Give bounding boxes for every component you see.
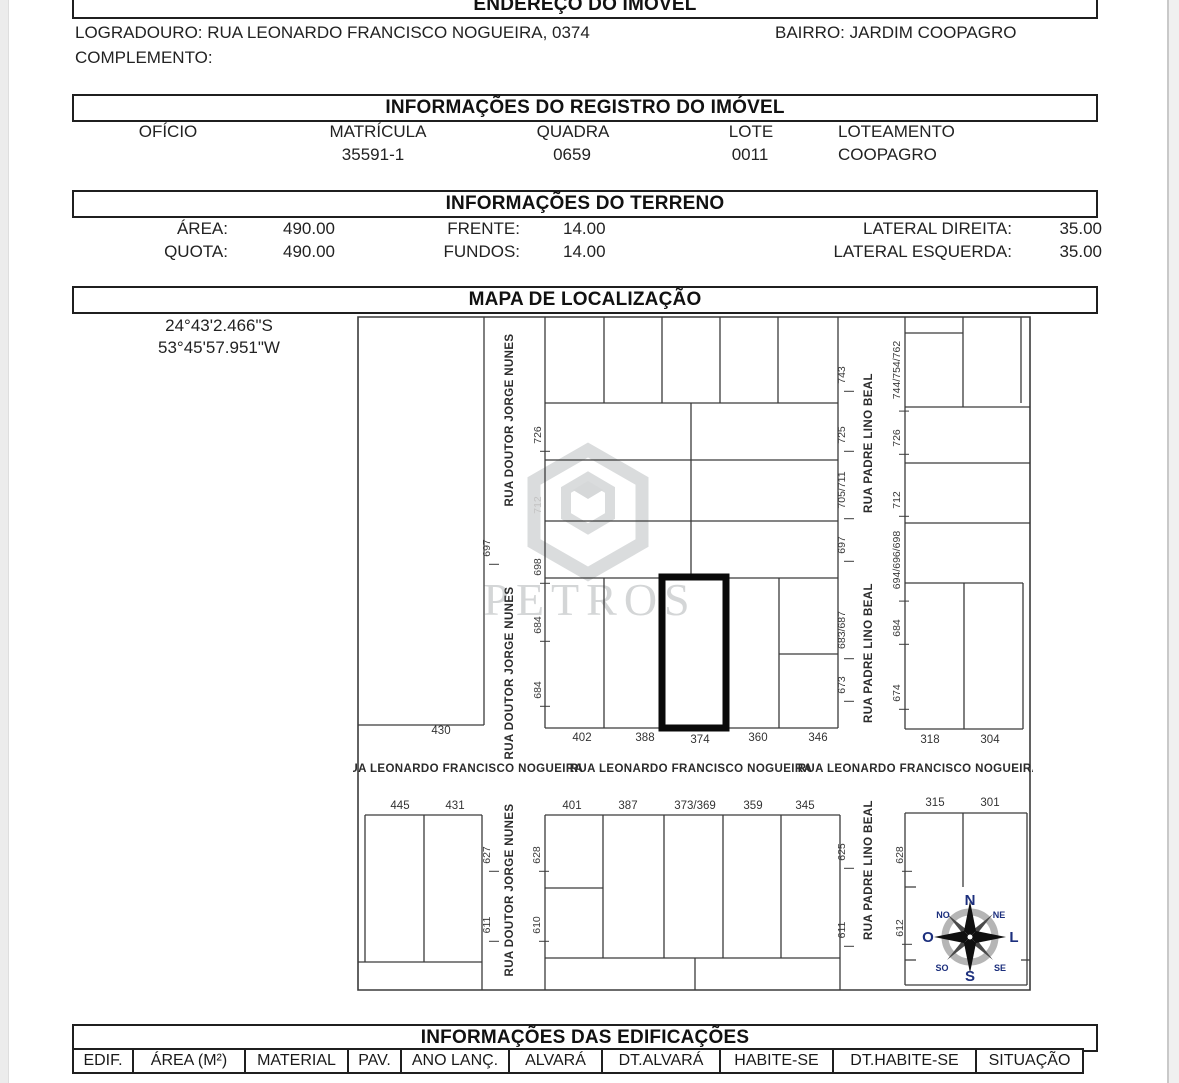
quota-value: 490.00	[283, 242, 335, 262]
lot-number-rotated: 628	[894, 846, 906, 864]
lateral-direita-value: 35.00	[1040, 219, 1102, 239]
lot-number-rotated: 674	[891, 684, 903, 702]
lote-value: 0011	[732, 145, 769, 165]
lot-number-rotated: 683/687	[836, 611, 848, 649]
area-value: 490.00	[283, 219, 335, 239]
section-header-registro-label: INFORMAÇÕES DO REGISTRO DO IMÓVEL	[385, 97, 784, 118]
area-label: ÁREA:	[68, 219, 228, 239]
section-header-mapa: MAPA DE LOCALIZAÇÃO	[72, 286, 1098, 314]
street-name-vertical: RUA PADRE LINO BEAL	[863, 373, 875, 513]
lot-number-rotated: 712	[532, 496, 544, 514]
lot-number-rotated: 725	[836, 426, 848, 444]
lot-number-rotated: 712	[891, 491, 903, 509]
lot-number: 431	[445, 800, 464, 812]
compass-north-label: N	[965, 892, 976, 909]
col-habite-se: HABITE-SE	[719, 1048, 834, 1074]
lot-number-rotated: 611	[481, 916, 493, 933]
lot-number: 402	[572, 732, 591, 744]
compass-southeast-label: SE	[994, 963, 1006, 973]
quadra-value: 0659	[553, 145, 591, 165]
lot-number: 301	[980, 797, 999, 809]
fundos-value: 14.00	[563, 242, 606, 262]
lot-number-rotated: 684	[891, 619, 903, 637]
col-area: ÁREA (M²)	[132, 1048, 246, 1074]
lot-number-rotated: 726	[891, 429, 903, 447]
fundos-label: FUNDOS:	[360, 242, 520, 262]
bairro-line: BAIRRO: JARDIM COOPAGRO	[775, 23, 1017, 43]
col-edif: EDIF.	[72, 1048, 134, 1074]
lot-number-rotated: 612	[894, 919, 906, 937]
col-ano-lanc: ANO LANÇ.	[400, 1048, 510, 1074]
street-name-vertical: RUA DOUTOR JORGE NUNES	[504, 333, 516, 506]
lot-number: 373/369	[674, 800, 716, 812]
lot-number-rotated: 726	[532, 426, 544, 444]
lot-number-rotated: 744/754/762	[891, 341, 903, 400]
compass-northeast-label: NE	[993, 910, 1006, 920]
col-pav: PAV.	[347, 1048, 402, 1074]
col-material: MATERIAL	[244, 1048, 349, 1074]
lot-number: 346	[808, 732, 827, 744]
lot-number: 315	[925, 797, 944, 809]
lot-number-rotated: 697	[836, 536, 848, 554]
lot-number: 374	[690, 734, 710, 746]
section-header-endereco: ENDEREÇO DO IMÓVEL	[72, 0, 1098, 19]
col-dt-alvara: DT.ALVARÁ	[601, 1048, 721, 1074]
coordinate-longitude: 53°45'57.951"W	[158, 338, 280, 358]
lot-number-rotated: 684	[532, 616, 544, 634]
lot-number-rotated: 697	[481, 539, 493, 557]
section-header-registro: INFORMAÇÕES DO REGISTRO DO IMÓVEL	[72, 94, 1098, 122]
lot-number-rotated: 628	[531, 846, 543, 864]
lot-number-rotated: 743	[836, 366, 848, 384]
street-name-horizontal: RUA LEONARDO FRANCISCO NOGUEIRA	[798, 763, 1033, 775]
compass-southwest-label: SO	[935, 963, 948, 973]
lot-number: 401	[562, 800, 581, 812]
street-name-vertical: RUA PADRE LINO BEAL	[863, 800, 875, 940]
loteamento-label: LOTEAMENTO	[838, 122, 955, 142]
edificacoes-header-row: EDIF. ÁREA (M²) MATERIAL PAV. ANO LANÇ. …	[72, 1048, 1098, 1074]
section-header-terreno: INFORMAÇÕES DO TERRENO	[72, 190, 1098, 218]
lateral-esquerda-value: 35.00	[1040, 242, 1102, 262]
lot-number: 388	[635, 732, 654, 744]
quota-label: QUOTA:	[68, 242, 228, 262]
lot-number: 359	[743, 800, 762, 812]
street-name-vertical: RUA PADRE LINO BEAL	[863, 583, 875, 723]
lot-number-rotated: 673	[836, 676, 848, 694]
col-situacao: SITUAÇÃO	[975, 1048, 1084, 1074]
compass-south-label: S	[965, 968, 975, 985]
street-name-horizontal: RUA LEONARDO FRANCISCO NOGUEIRA	[353, 763, 583, 775]
street-name-horizontal: RUA LEONARDO FRANCISCO NOGUEIRA	[570, 763, 813, 775]
lot-number-rotated: 611	[836, 921, 848, 938]
compass-east-label: L	[1009, 929, 1018, 946]
lot-number: 445	[390, 800, 409, 812]
location-map: PETROS	[353, 313, 1033, 993]
lot-number-rotated: 625	[836, 843, 848, 861]
col-dt-habite-se: DT.HABITE-SE	[832, 1048, 977, 1074]
scan-right-gutter	[1167, 0, 1179, 1083]
lot-number-rotated: 684	[532, 681, 544, 699]
compass-west-label: O	[922, 929, 934, 946]
oficio-label: OFÍCIO	[139, 122, 198, 142]
street-name-vertical: RUA DOUTOR JORGE NUNES	[504, 586, 516, 759]
frente-value: 14.00	[563, 219, 606, 239]
lot-number: 360	[748, 732, 767, 744]
lateral-direita-label: LATERAL DIREITA:	[772, 219, 1012, 239]
street-name-vertical: RUA DOUTOR JORGE NUNES	[504, 803, 516, 976]
lot-number: 304	[980, 734, 1000, 746]
logradouro-line: LOGRADOURO: RUA LEONARDO FRANCISCO NOGUE…	[75, 23, 590, 43]
section-header-endereco-label: ENDEREÇO DO IMÓVEL	[473, 0, 696, 17]
lot-number: 430	[431, 725, 450, 737]
lot-number-rotated: 694/696/698	[891, 531, 903, 590]
lateral-esquerda-label: LATERAL ESQUERDA:	[772, 242, 1012, 262]
lot-number: 318	[920, 734, 939, 746]
scan-left-gutter	[0, 0, 9, 1083]
section-header-edificacoes-label: INFORMAÇÕES DAS EDIFICAÇÕES	[421, 1027, 749, 1048]
frente-label: FRENTE:	[360, 219, 520, 239]
col-alvara: ALVARÁ	[508, 1048, 603, 1074]
loteamento-value: COOPAGRO	[838, 145, 937, 165]
complemento-line: COMPLEMENTO:	[75, 48, 213, 68]
lot-number-rotated: 698	[532, 558, 544, 576]
matricula-value: 35591-1	[342, 145, 404, 165]
matricula-label: MATRÍCULA	[330, 122, 427, 142]
lot-number: 345	[795, 800, 814, 812]
section-header-terreno-label: INFORMAÇÕES DO TERRENO	[446, 193, 725, 214]
lot-number-rotated: 627	[481, 846, 493, 864]
compass-northwest-label: NO	[936, 910, 950, 920]
section-header-mapa-label: MAPA DE LOCALIZAÇÃO	[469, 289, 702, 310]
coordinate-latitude: 24°43'2.466"S	[165, 316, 273, 336]
quadra-label: QUADRA	[537, 122, 610, 142]
lot-number: 387	[618, 800, 637, 812]
lot-number-rotated: 610	[531, 916, 543, 934]
compass-rose-icon: NSOLNONESOSE	[922, 892, 1018, 985]
lote-label: LOTE	[729, 122, 773, 142]
map-lines	[358, 317, 1030, 990]
lot-number-rotated: 705/711	[836, 471, 848, 508]
